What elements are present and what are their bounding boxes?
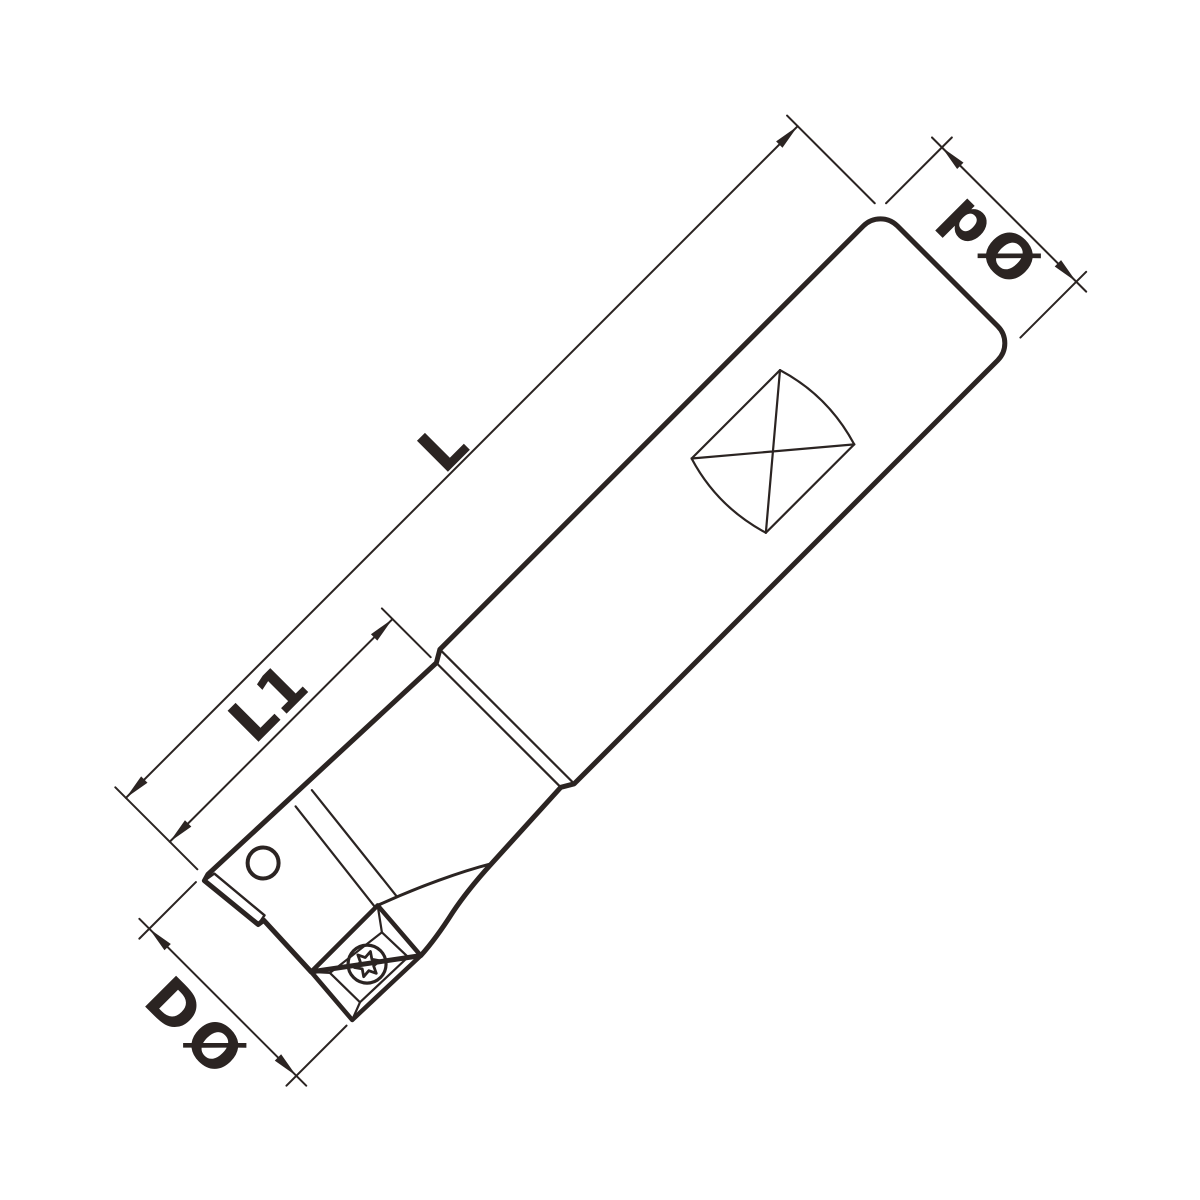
drawing-canvas: L L1 pØ DØ bbox=[0, 0, 1200, 1200]
technical-drawing: L L1 pØ DØ bbox=[0, 0, 1200, 1200]
